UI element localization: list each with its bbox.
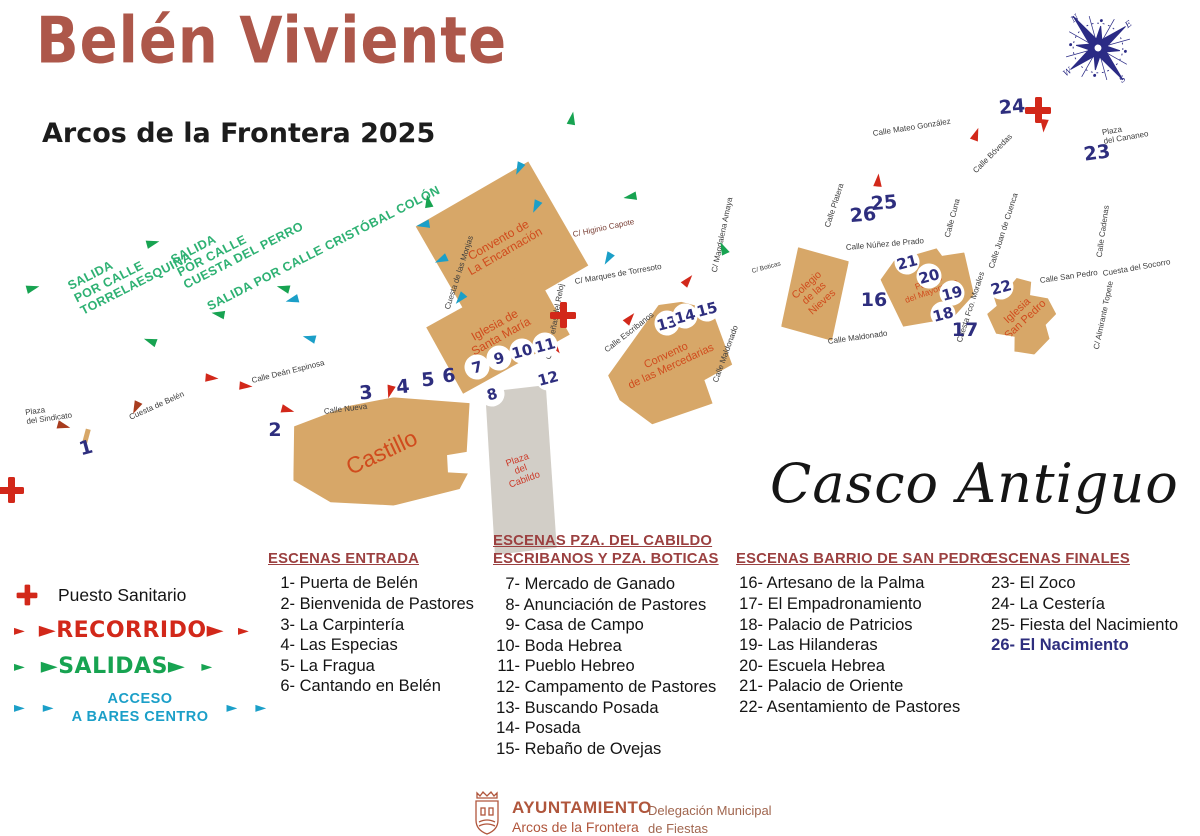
scene-marker-23: 23 bbox=[1082, 140, 1111, 165]
exit-arrow-icon: ► bbox=[210, 304, 226, 323]
scene-list-item: 26- El Nacimiento bbox=[988, 635, 1178, 656]
casco-antiguo-label: Casco Antiguo bbox=[770, 452, 1179, 515]
exit-arrow-icon: ► bbox=[418, 193, 437, 209]
scene-list-cabildo-boticas: ESCENAS PZA. DEL CABILDOESCRIBANOS Y PZA… bbox=[493, 532, 719, 759]
scene-marker-3: 3 bbox=[358, 381, 373, 404]
scene-list-item: 4- Las Especias bbox=[268, 635, 474, 656]
route-arrow-icon: ► bbox=[55, 416, 72, 436]
scene-marker-17: 17 bbox=[952, 319, 978, 341]
compass-rose-icon: N E S W bbox=[1052, 2, 1144, 94]
scene-marker-26: 26 bbox=[849, 203, 877, 227]
scene-list-entrada: ESCENAS ENTRADA1- Puerta de Belén2- Bien… bbox=[268, 550, 474, 697]
building-castillo: Castillo bbox=[289, 393, 474, 510]
exit-arrow-icon: ► bbox=[141, 331, 159, 351]
street-label: C/ Boticas bbox=[751, 260, 781, 275]
legend-acceso-label: ACCESOA BARES CENTRO bbox=[72, 690, 209, 726]
route-arrow-icon: ► bbox=[238, 623, 249, 639]
building-label: Conventode las Mercedarias bbox=[622, 332, 716, 393]
scene-list-item: 19- Las Hilanderas bbox=[736, 635, 992, 656]
route-arrow-icon: ► bbox=[869, 173, 887, 188]
building-label: Colegiode lasNieves bbox=[790, 269, 839, 318]
street-label: Cuesta del Socorro bbox=[1102, 258, 1171, 279]
exit-arrow-icon: ► bbox=[14, 659, 25, 675]
footer-dept: Delegación Municipalde Fiestas bbox=[648, 802, 772, 836]
scene-marker-6: 6 bbox=[441, 364, 456, 387]
scene-list-item: 10- Boda Hebrea bbox=[493, 636, 719, 657]
exit-route-label: SALIDAPOR CALLETORRELAESQUINA bbox=[65, 225, 193, 318]
scene-list-header: ESCENAS BARRIO DE SAN PEDRO bbox=[736, 550, 992, 568]
route-arrow-icon: ► bbox=[239, 377, 254, 395]
scene-list-item: 8- Anunciación de Pastores bbox=[493, 595, 719, 616]
scene-list-item: 13- Buscando Posada bbox=[493, 698, 719, 719]
scene-list-finales: ESCENAS FINALES23- El Zoco24- La Cesterí… bbox=[988, 550, 1178, 656]
street-label: C/ Almirante Topete bbox=[1093, 280, 1116, 350]
compass-w-label: W bbox=[1061, 64, 1075, 78]
legend-sanitario-row: Puesto Sanitario bbox=[14, 582, 186, 608]
street-label: Calle Cadenas bbox=[1096, 205, 1112, 258]
red-cross-icon bbox=[17, 585, 38, 606]
street-label: Calle Maldonado bbox=[827, 330, 888, 347]
exit-route-label: SALIDAPOR CALLECUESTA DEL PERRO bbox=[168, 194, 305, 292]
street-label: C/ Marques de Torresoto bbox=[574, 263, 662, 287]
access-arrow-icon: ► bbox=[415, 215, 431, 234]
building-nieves: Colegiode lasNieves bbox=[780, 246, 850, 341]
cross-bar bbox=[8, 477, 15, 503]
access-arrow-icon: ► bbox=[597, 249, 618, 269]
scene-list-header: ESCENAS PZA. DEL CABILDOESCRIBANOS Y PZA… bbox=[493, 532, 719, 569]
first-aid-cross-icon bbox=[0, 477, 24, 503]
legend-salidas-row: ► ►SALIDAS► ► bbox=[14, 654, 212, 679]
compass-s-label: S bbox=[1117, 73, 1128, 85]
exit-arrow-icon: ► bbox=[562, 110, 581, 126]
access-arrow-icon: ► bbox=[43, 700, 54, 716]
street-label: C/ Higinio Capote bbox=[572, 218, 635, 240]
belen-viviente-map-poster: Belén Viviente Arcos de la Frontera 2025 bbox=[0, 0, 1200, 836]
building-cabildo: PlazadelCabildo bbox=[485, 385, 557, 555]
scene-list-item: 3- La Carpintería bbox=[268, 615, 474, 636]
footer: AYUNTAMIENTO Arcos de la Frontera Delega… bbox=[0, 780, 1200, 836]
scene-marker-5: 5 bbox=[420, 368, 435, 391]
legend-acceso-row: ► ► ACCESOA BARES CENTRO ► ► bbox=[14, 690, 266, 726]
scene-list-item: 12- Campamento de Pastores bbox=[493, 677, 719, 698]
scene-marker-4: 4 bbox=[395, 375, 410, 398]
route-arrow-icon: ► bbox=[279, 400, 296, 420]
scene-list-item: 11- Pueblo Hebreo bbox=[493, 656, 719, 677]
access-arrow-icon: ► bbox=[227, 700, 238, 716]
scene-list-barrio-san-pedro: ESCENAS BARRIO DE SAN PEDRO16- Artesano … bbox=[736, 550, 992, 718]
street-label: Calle Juan de Cuenca bbox=[988, 192, 1021, 270]
cross-bar bbox=[560, 302, 567, 328]
scene-list-item: 7- Mercado de Ganado bbox=[493, 574, 719, 595]
scene-list-header: ESCENAS FINALES bbox=[988, 550, 1178, 568]
legend-recorrido-label: ►RECORRIDO► bbox=[39, 618, 224, 643]
scene-list-item: 18- Palacio de Patricios bbox=[736, 615, 992, 636]
street-label: Calle Cuna bbox=[944, 198, 963, 239]
route-arrow-icon: ► bbox=[966, 125, 986, 143]
scene-list-item: 15- Rebaño de Ovejas bbox=[493, 739, 719, 760]
scene-list-item: 1- Puerta de Belén bbox=[268, 573, 474, 594]
access-arrow-icon: ► bbox=[14, 700, 25, 716]
cross-bar bbox=[1035, 97, 1042, 123]
route-arrow-icon: ► bbox=[14, 623, 25, 639]
scene-list-item: 23- El Zoco bbox=[988, 573, 1178, 594]
scene-marker-16: 16 bbox=[861, 289, 887, 311]
scene-list-item: 16- Artesano de la Palma bbox=[736, 573, 992, 594]
street-label: C/ Magdalena Amaya bbox=[711, 197, 736, 274]
scene-list-item: 17- El Empadronamiento bbox=[736, 594, 992, 615]
access-arrow-icon: ► bbox=[255, 700, 266, 716]
exit-arrow-icon: ► bbox=[622, 187, 638, 206]
scene-list-item: 25- Fiesta del Nacimiento bbox=[988, 615, 1178, 636]
scene-list-item: 21- Palacio de Oriente bbox=[736, 676, 992, 697]
scene-list-item: 2- Bienvenida de Pastores bbox=[268, 594, 474, 615]
route-arrow-icon: ► bbox=[677, 270, 698, 291]
scene-list-item: 20- Escuela Hebrea bbox=[736, 656, 992, 677]
scene-list-item: 5- La Fragua bbox=[268, 656, 474, 677]
footer-org-name: AYUNTAMIENTO bbox=[512, 798, 652, 818]
scene-list-header: ESCENAS ENTRADA bbox=[268, 550, 474, 568]
route-arrow-icon: ► bbox=[205, 369, 220, 387]
exit-arrow-icon: ► bbox=[201, 659, 212, 675]
access-arrow-icon: ► bbox=[283, 290, 300, 310]
street-label: Calle Platera bbox=[824, 182, 847, 228]
first-aid-cross-icon bbox=[1025, 97, 1051, 123]
scene-list-item: 14- Posada bbox=[493, 718, 719, 739]
legend-recorrido-row: ► ►RECORRIDO► ► bbox=[14, 618, 249, 643]
street-label: Calle San Pedro bbox=[1039, 269, 1098, 286]
legend-salidas-label: ►SALIDAS► bbox=[41, 654, 186, 679]
first-aid-cross-icon bbox=[550, 302, 576, 328]
exit-arrow-icon: ► bbox=[24, 278, 41, 298]
scene-marker-24: 24 bbox=[998, 95, 1026, 119]
building-label: PlazadelCabildo bbox=[501, 450, 542, 490]
scene-list-item: 6- Cantando en Belén bbox=[268, 676, 474, 697]
street-label: Calle Deán Espinosa bbox=[251, 359, 326, 386]
scene-list-item: 22- Asentamiento de Pastores bbox=[736, 697, 992, 718]
scene-list-item: 24- La Cestería bbox=[988, 594, 1178, 615]
footer-org-sub: Arcos de la Frontera bbox=[512, 819, 639, 835]
legend-sanitario-label: Puesto Sanitario bbox=[58, 585, 186, 606]
scene-list-item: 9- Casa de Campo bbox=[493, 615, 719, 636]
building-label: Castillo bbox=[343, 425, 422, 479]
scene-marker-1: 1 bbox=[77, 436, 95, 461]
scene-marker-2: 2 bbox=[268, 419, 281, 441]
city-crest-icon bbox=[474, 790, 500, 836]
street-label: Calle Mateo González bbox=[872, 118, 951, 139]
access-arrow-icon: ► bbox=[300, 328, 317, 348]
